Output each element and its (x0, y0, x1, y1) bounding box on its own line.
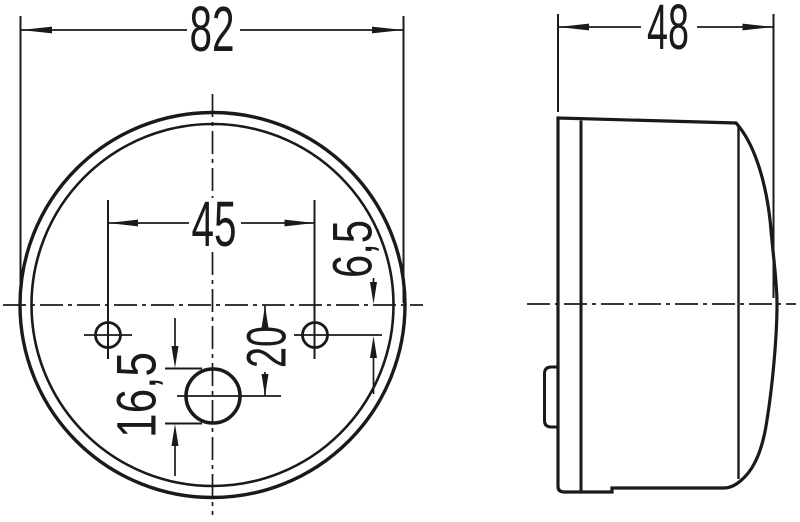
mounting-hole-right (294, 323, 382, 348)
arrowhead-down-icon (172, 346, 179, 368)
arrowhead-down-icon (370, 282, 377, 304)
arrowhead-down-icon (262, 374, 269, 396)
dim-label-outer-diameter: 82 (190, 0, 235, 65)
technical-drawing: 82 45 6,5 20 (0, 0, 800, 522)
arrowhead-right-icon (372, 27, 403, 34)
dim-label-hole-offset: 6,5 (321, 220, 384, 278)
drawing-canvas: 82 45 6,5 20 (0, 0, 800, 522)
housing-outline (558, 118, 777, 492)
dimension-depth: 48 (558, 0, 774, 298)
arrowhead-left-icon (108, 220, 138, 227)
side-view: 48 (527, 0, 796, 492)
arrowhead-right-icon (743, 24, 774, 31)
arrowhead-left-icon (558, 24, 589, 31)
dim-label-center-hole-size: 16,5 (105, 352, 168, 438)
dimension-hole-offset: 6,5 (321, 220, 384, 394)
arrowhead-up-icon (262, 306, 269, 328)
arrowhead-right-icon (285, 220, 315, 227)
front-view: 82 45 6,5 20 (3, 0, 423, 515)
dim-label-center-hole-offset: 20 (235, 326, 298, 368)
dim-label-hole-spacing: 45 (192, 188, 237, 260)
mounting-tab (545, 367, 559, 427)
dimension-center-hole-offset: 20 (235, 305, 298, 396)
arrowhead-left-icon (21, 27, 52, 34)
dim-label-depth: 48 (647, 0, 689, 63)
